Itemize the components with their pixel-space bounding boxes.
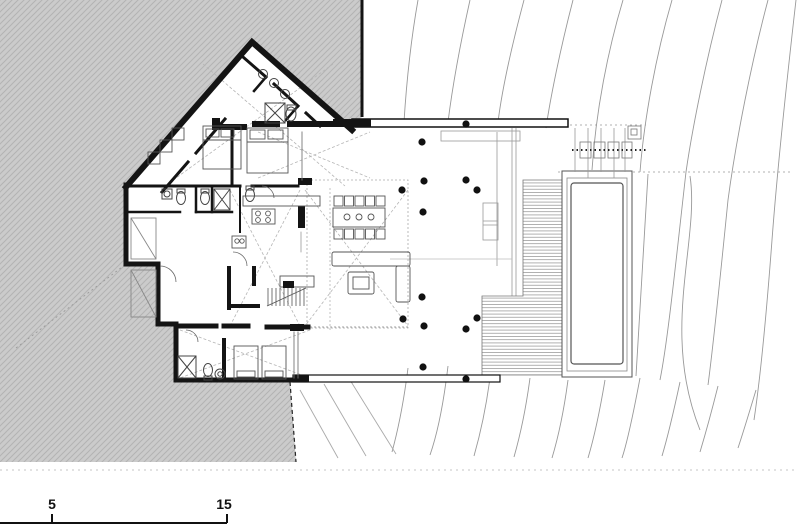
chair	[376, 196, 385, 206]
terrace-columns	[398, 120, 480, 382]
floor-plan-canvas: 5 15	[0, 0, 800, 530]
scale-bar: 5 15	[0, 496, 232, 523]
entry-steps	[572, 126, 646, 178]
chair	[355, 196, 364, 206]
chair	[366, 196, 375, 206]
roof-lines	[165, 64, 792, 378]
chair	[366, 229, 375, 239]
bed	[203, 126, 241, 169]
dining-set	[333, 196, 385, 239]
dining-table	[333, 208, 385, 227]
pool-bench	[483, 203, 498, 240]
chair	[355, 229, 364, 239]
toilet-icon	[204, 364, 213, 377]
stove-icon	[252, 209, 275, 224]
chair	[345, 196, 354, 206]
north-roof-edge	[352, 119, 568, 127]
floor-plan-drawing: 5 15	[0, 0, 800, 530]
scale-label-5: 5	[48, 496, 56, 512]
terrain-hillside	[0, 0, 362, 462]
chair	[345, 229, 354, 239]
staircase	[267, 288, 306, 306]
sofa-set	[332, 252, 410, 302]
equipment-box	[628, 126, 641, 139]
terrace-edges	[390, 128, 520, 296]
wood-deck	[482, 180, 563, 375]
scale-label-15: 15	[216, 496, 232, 512]
chair	[334, 196, 343, 206]
bed	[247, 128, 288, 173]
pool	[562, 171, 632, 377]
bed	[262, 346, 286, 379]
